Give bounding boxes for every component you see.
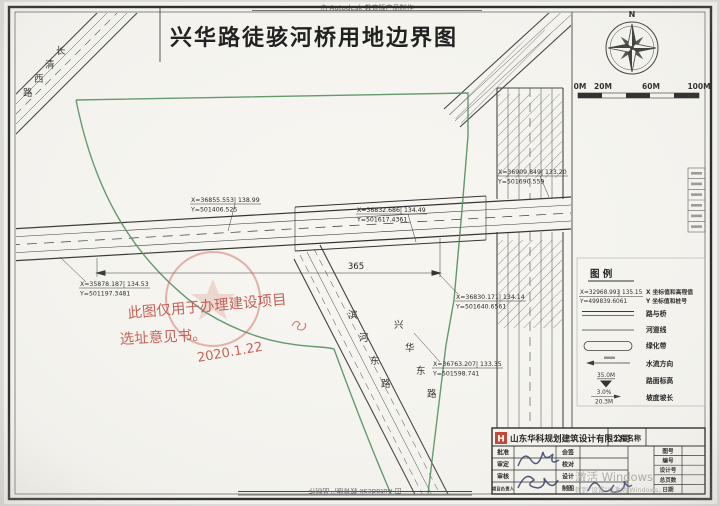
tb-label: 审定 <box>497 461 509 469</box>
title-block: H 山东华科规划建筑设计有限公司 工程名称 批准 审定 审核 项目负责人 会签 … <box>492 428 705 494</box>
legend-item-label: 路与桥 <box>646 309 667 318</box>
callout-y: Y=501406.525 <box>190 207 237 214</box>
callout-x: X=36763.207 <box>433 361 476 368</box>
callout-y: Y=501617.4361 <box>356 217 407 224</box>
tb-label: 批准 <box>497 449 509 457</box>
watermark-line2: 转到“设置”以激活 Windows。 <box>575 485 665 494</box>
callout-x: X=36909.849 <box>498 169 541 176</box>
slope-percent-value: 3.0% <box>597 390 612 396</box>
tb-label: 审核 <box>497 473 509 481</box>
compass-north-label: N <box>629 10 636 19</box>
callout-y: Y=501690.559 <box>497 179 544 186</box>
callout-elev: 133.35 <box>480 361 502 368</box>
company-logo-letter: H <box>497 435 505 445</box>
windows-activation-watermark: 激活 Windows 转到“设置”以激活 Windows。 <box>575 470 665 494</box>
legend-sample-x: X=32968.993 <box>580 290 620 296</box>
tb-right-label: 图号 <box>662 447 674 455</box>
scale-label-60: 60M <box>642 82 660 91</box>
callout-elev: 134.53 <box>127 281 149 288</box>
legend-sample-y: Y=499839.6061 <box>579 299 627 305</box>
tb-label: 校对 <box>562 461 574 469</box>
callout-elev: 133.20 <box>545 169 567 176</box>
legend-sample-label2: Y 坐标值和桩号 <box>645 297 687 305</box>
callout-y: Y=501598.741 <box>432 371 479 378</box>
legend-title: 图 例 <box>590 268 612 280</box>
callout-elev: 134.49 <box>404 207 426 214</box>
water-level-value: 35.0M <box>597 373 615 379</box>
scale-label-0: 0M <box>574 82 587 91</box>
tb-label: 项目负责人 <box>492 486 515 493</box>
tb-label: 设计 <box>562 473 574 481</box>
tb-label: 制图 <box>562 485 574 493</box>
legend-sample-elev: 135.15 <box>622 290 643 296</box>
legend-item-label: 绿化带 <box>646 341 667 350</box>
scale-bar: 0M 20M 60M 100M <box>574 82 711 98</box>
legend-item-label: 坡度坡长 <box>646 393 673 402</box>
drawing-sheet: 由 Autodesk 教育版产品制作 <box>0 0 720 506</box>
tb-right-label: 总页数 <box>660 476 677 484</box>
legend-item-label: 路面标高 <box>646 376 673 385</box>
callout-y: Y=501640.6561 <box>455 304 506 311</box>
callout-x: X=36832.686 <box>357 207 400 214</box>
callout-elev: 134.14 <box>503 294 525 301</box>
project-name-label: 工程名称 <box>613 434 641 443</box>
callout-elev: 138.99 <box>238 197 260 204</box>
drawing-title: 兴华路徒骇河桥用地边界图 <box>170 25 458 51</box>
legend-item-label: 河道线 <box>646 325 667 334</box>
callout-x: X=35878.187 <box>80 281 123 288</box>
callout-y: Y=501197.3481 <box>79 291 130 298</box>
bridge-span-value: 365 <box>348 262 364 272</box>
tb-right-label: 编号 <box>662 457 674 465</box>
legend-item-label: 水流方向 <box>645 359 673 368</box>
legend-sample-label1: X 坐标值和高程值 <box>646 288 693 296</box>
callout-x: X=36830.171 <box>456 294 499 301</box>
tb-label: 会签 <box>562 449 575 457</box>
scale-label-20: 20M <box>594 82 612 91</box>
tb-right-label: 设计号 <box>660 466 677 474</box>
scale-label-100: 100M <box>687 82 710 91</box>
autodesk-banner-bottom-text: 由 Autodesk 教育版产品制作 <box>308 487 401 496</box>
slope-length-value: 20.3M <box>595 400 613 406</box>
watermark-line1: 激活 Windows <box>575 470 653 484</box>
callout-x: X=36855.553 <box>191 197 234 204</box>
